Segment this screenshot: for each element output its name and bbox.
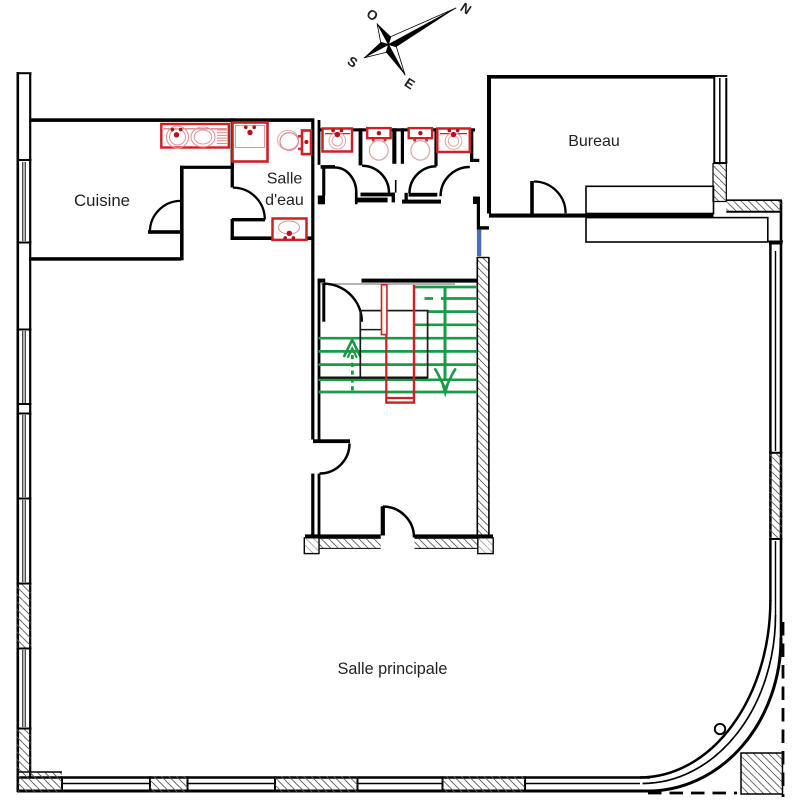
svg-text:Bureau: Bureau: [568, 133, 620, 150]
svg-text:Cuisine: Cuisine: [74, 191, 130, 210]
svg-text:Salle: Salle: [267, 171, 303, 188]
svg-text:d'eau: d'eau: [265, 192, 304, 209]
svg-text:Salle principale: Salle principale: [338, 660, 448, 678]
